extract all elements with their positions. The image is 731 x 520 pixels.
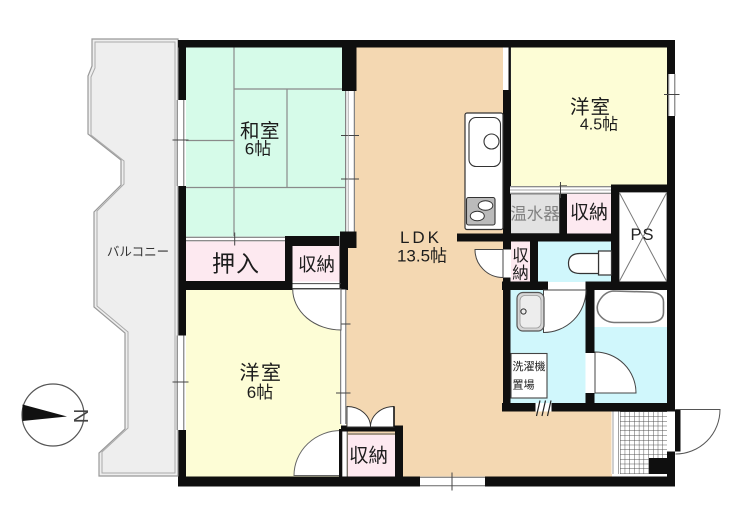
svg-text:納: 納 [512, 264, 529, 283]
svg-text:収納: 収納 [298, 254, 335, 275]
svg-text:収納: 収納 [570, 202, 608, 224]
svg-text:置場: 置場 [513, 379, 535, 392]
svg-text:洋室: 洋室 [240, 362, 283, 385]
svg-text:N: N [69, 409, 91, 423]
svg-text:4.5帖: 4.5帖 [580, 116, 618, 134]
svg-text:温水器: 温水器 [510, 205, 560, 224]
svg-text:収: 収 [512, 246, 529, 265]
svg-text:洗濯機: 洗濯機 [513, 359, 546, 373]
svg-text:6帖: 6帖 [247, 383, 273, 402]
svg-text:押入: 押入 [212, 251, 260, 277]
svg-text:6帖: 6帖 [245, 140, 271, 159]
svg-text:収納: 収納 [349, 445, 388, 467]
svg-text:13.5帖: 13.5帖 [397, 247, 447, 266]
svg-text:洋室: 洋室 [570, 97, 611, 119]
svg-text:PS: PS [630, 226, 654, 244]
svg-text:バルコニー: バルコニー [107, 245, 169, 259]
svg-text:LDK: LDK [400, 228, 442, 247]
